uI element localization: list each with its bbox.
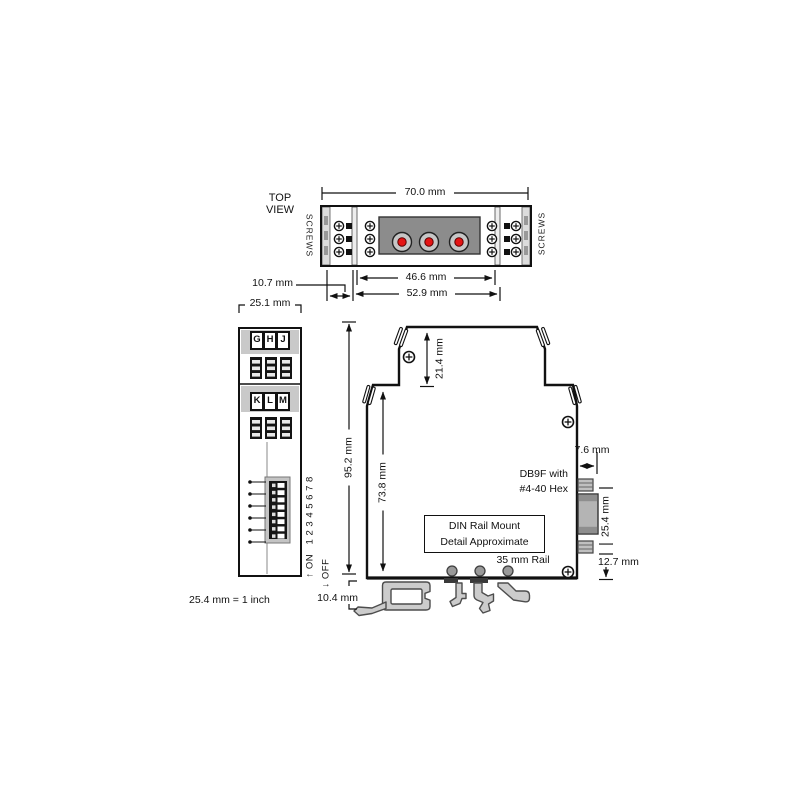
top-view-title-line2: VIEW bbox=[255, 204, 305, 217]
dim-db9-offset-127: 12.7 mm bbox=[598, 556, 650, 569]
dim-body-height-738: 73.8 mm bbox=[377, 455, 390, 511]
din-rail-clips bbox=[354, 582, 530, 616]
terminal-letter-k: K bbox=[250, 392, 264, 411]
din-module-dimension-drawing: TOP VIEW SCREWS SCREWS 70.0 mm 46.6 mm 5… bbox=[0, 0, 800, 800]
db9-label-line2: #4-40 Hex bbox=[498, 483, 568, 496]
scale-note: 25.4 mm = 1 inch bbox=[189, 594, 284, 607]
dim-width-251: 25.1 mm bbox=[245, 297, 295, 310]
din-note-line2: Detail Approximate bbox=[425, 534, 544, 550]
terminal-letter-g: G bbox=[250, 331, 264, 350]
dim-rail-depth-104: 10.4 mm bbox=[315, 592, 358, 605]
dim-height-952: 95.2 mm bbox=[343, 430, 356, 486]
db9-label-line1: DB9F with bbox=[498, 468, 568, 481]
dim-db9-height-254: 25.4 mm bbox=[600, 490, 613, 544]
din-rail-note-box: DIN Rail Mount Detail Approximate bbox=[424, 515, 545, 553]
dim-db9-depth-76: 7.6 mm bbox=[566, 444, 618, 457]
dip-on-label: ↑ ON 1 2 3 4 5 6 7 8 bbox=[304, 478, 317, 578]
dip-off-label: ↓ OFF bbox=[320, 538, 333, 588]
terminal-letter-m: M bbox=[276, 392, 290, 411]
dim-mount-529: 52.9 mm bbox=[399, 287, 455, 300]
terminal-letter-l: L bbox=[263, 392, 277, 411]
dim-offset-107: 10.7 mm bbox=[243, 277, 293, 290]
dim-width-70: 70.0 mm bbox=[396, 186, 454, 199]
dim-connector-466: 46.6 mm bbox=[398, 271, 454, 284]
screws-label-right: SCREWS bbox=[536, 211, 549, 257]
screws-label-left: SCREWS bbox=[303, 213, 316, 259]
din-note-line1: DIN Rail Mount bbox=[425, 518, 544, 534]
drawing-linework bbox=[0, 0, 800, 800]
top-view-outline bbox=[320, 205, 532, 267]
left-view-outline bbox=[238, 327, 302, 577]
terminal-letter-j: J bbox=[276, 331, 290, 350]
db9-connector bbox=[578, 479, 598, 553]
dim-top-section-214: 21.4 mm bbox=[434, 332, 447, 386]
terminal-letter-h: H bbox=[263, 331, 277, 350]
rail-label: 35 mm Rail bbox=[492, 554, 554, 567]
